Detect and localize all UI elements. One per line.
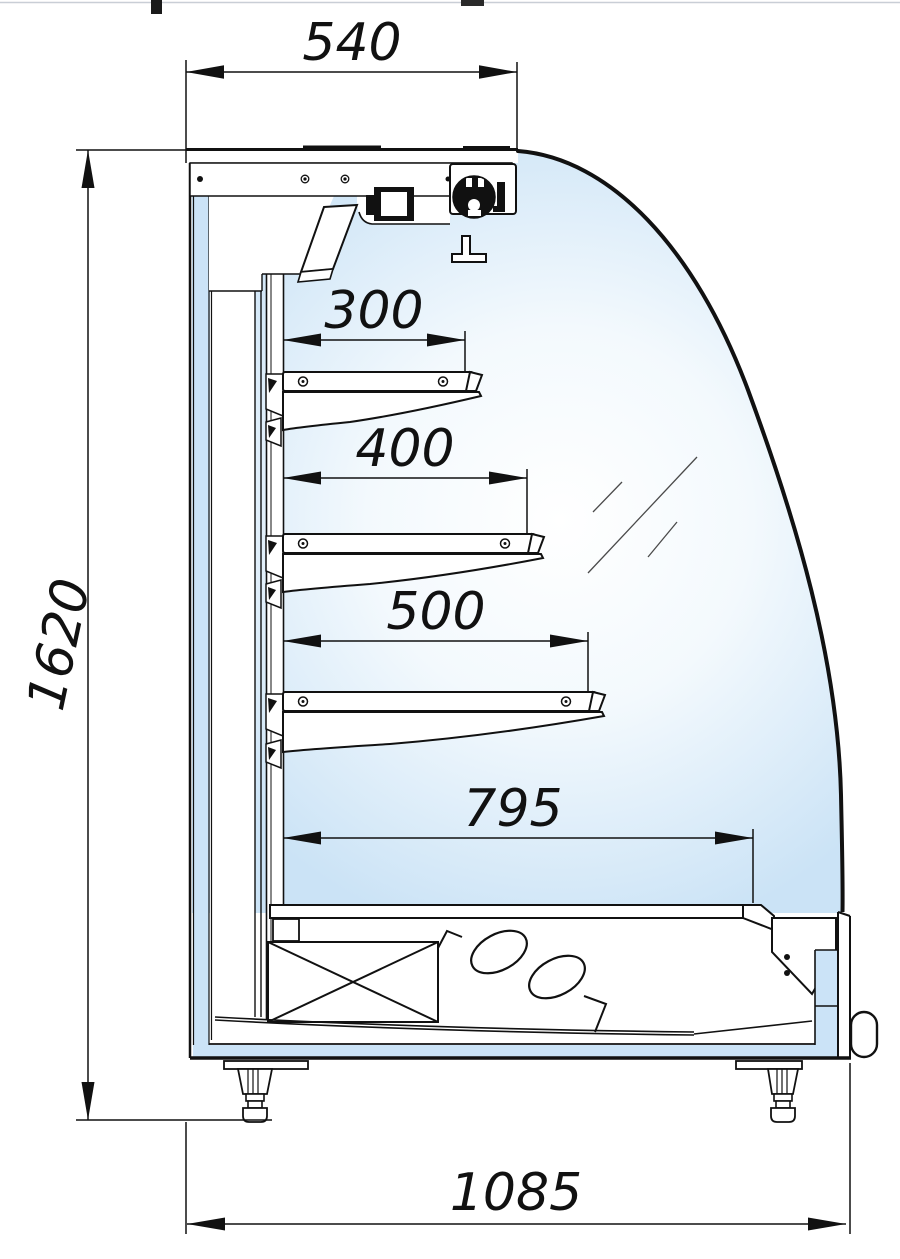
fan-shroud bbox=[438, 931, 462, 1022]
rear-insulation bbox=[193, 196, 209, 1046]
dim-label-overall-depth: 1085 bbox=[450, 1163, 582, 1223]
fan-blade-2 bbox=[522, 947, 592, 1007]
drawing-canvas: 540 1620 300 400 500 795 bbox=[0, 0, 900, 1259]
dimension-top-depth: 540 bbox=[186, 13, 517, 150]
scan-artifacts bbox=[0, 0, 900, 14]
dim-label-shelf3: 500 bbox=[386, 582, 485, 642]
fan-blade-1 bbox=[464, 922, 534, 982]
base-compartment bbox=[209, 918, 838, 1044]
lamp-ballast-clip bbox=[366, 195, 374, 215]
dim-label-shelf1: 300 bbox=[324, 281, 423, 341]
dim-label-overall-height: 1620 bbox=[16, 574, 102, 716]
dim-label-base-shelf: 795 bbox=[463, 779, 562, 839]
foot-right bbox=[736, 1061, 802, 1122]
dim-label-top-depth: 540 bbox=[302, 13, 401, 73]
dimension-overall-depth: 1085 bbox=[186, 1063, 850, 1234]
dim-label-shelf2: 400 bbox=[355, 419, 454, 479]
foot-left bbox=[224, 1061, 308, 1122]
bumper bbox=[851, 1012, 877, 1057]
technical-drawing-display-case-section: 540 1620 300 400 500 795 bbox=[0, 0, 900, 1259]
